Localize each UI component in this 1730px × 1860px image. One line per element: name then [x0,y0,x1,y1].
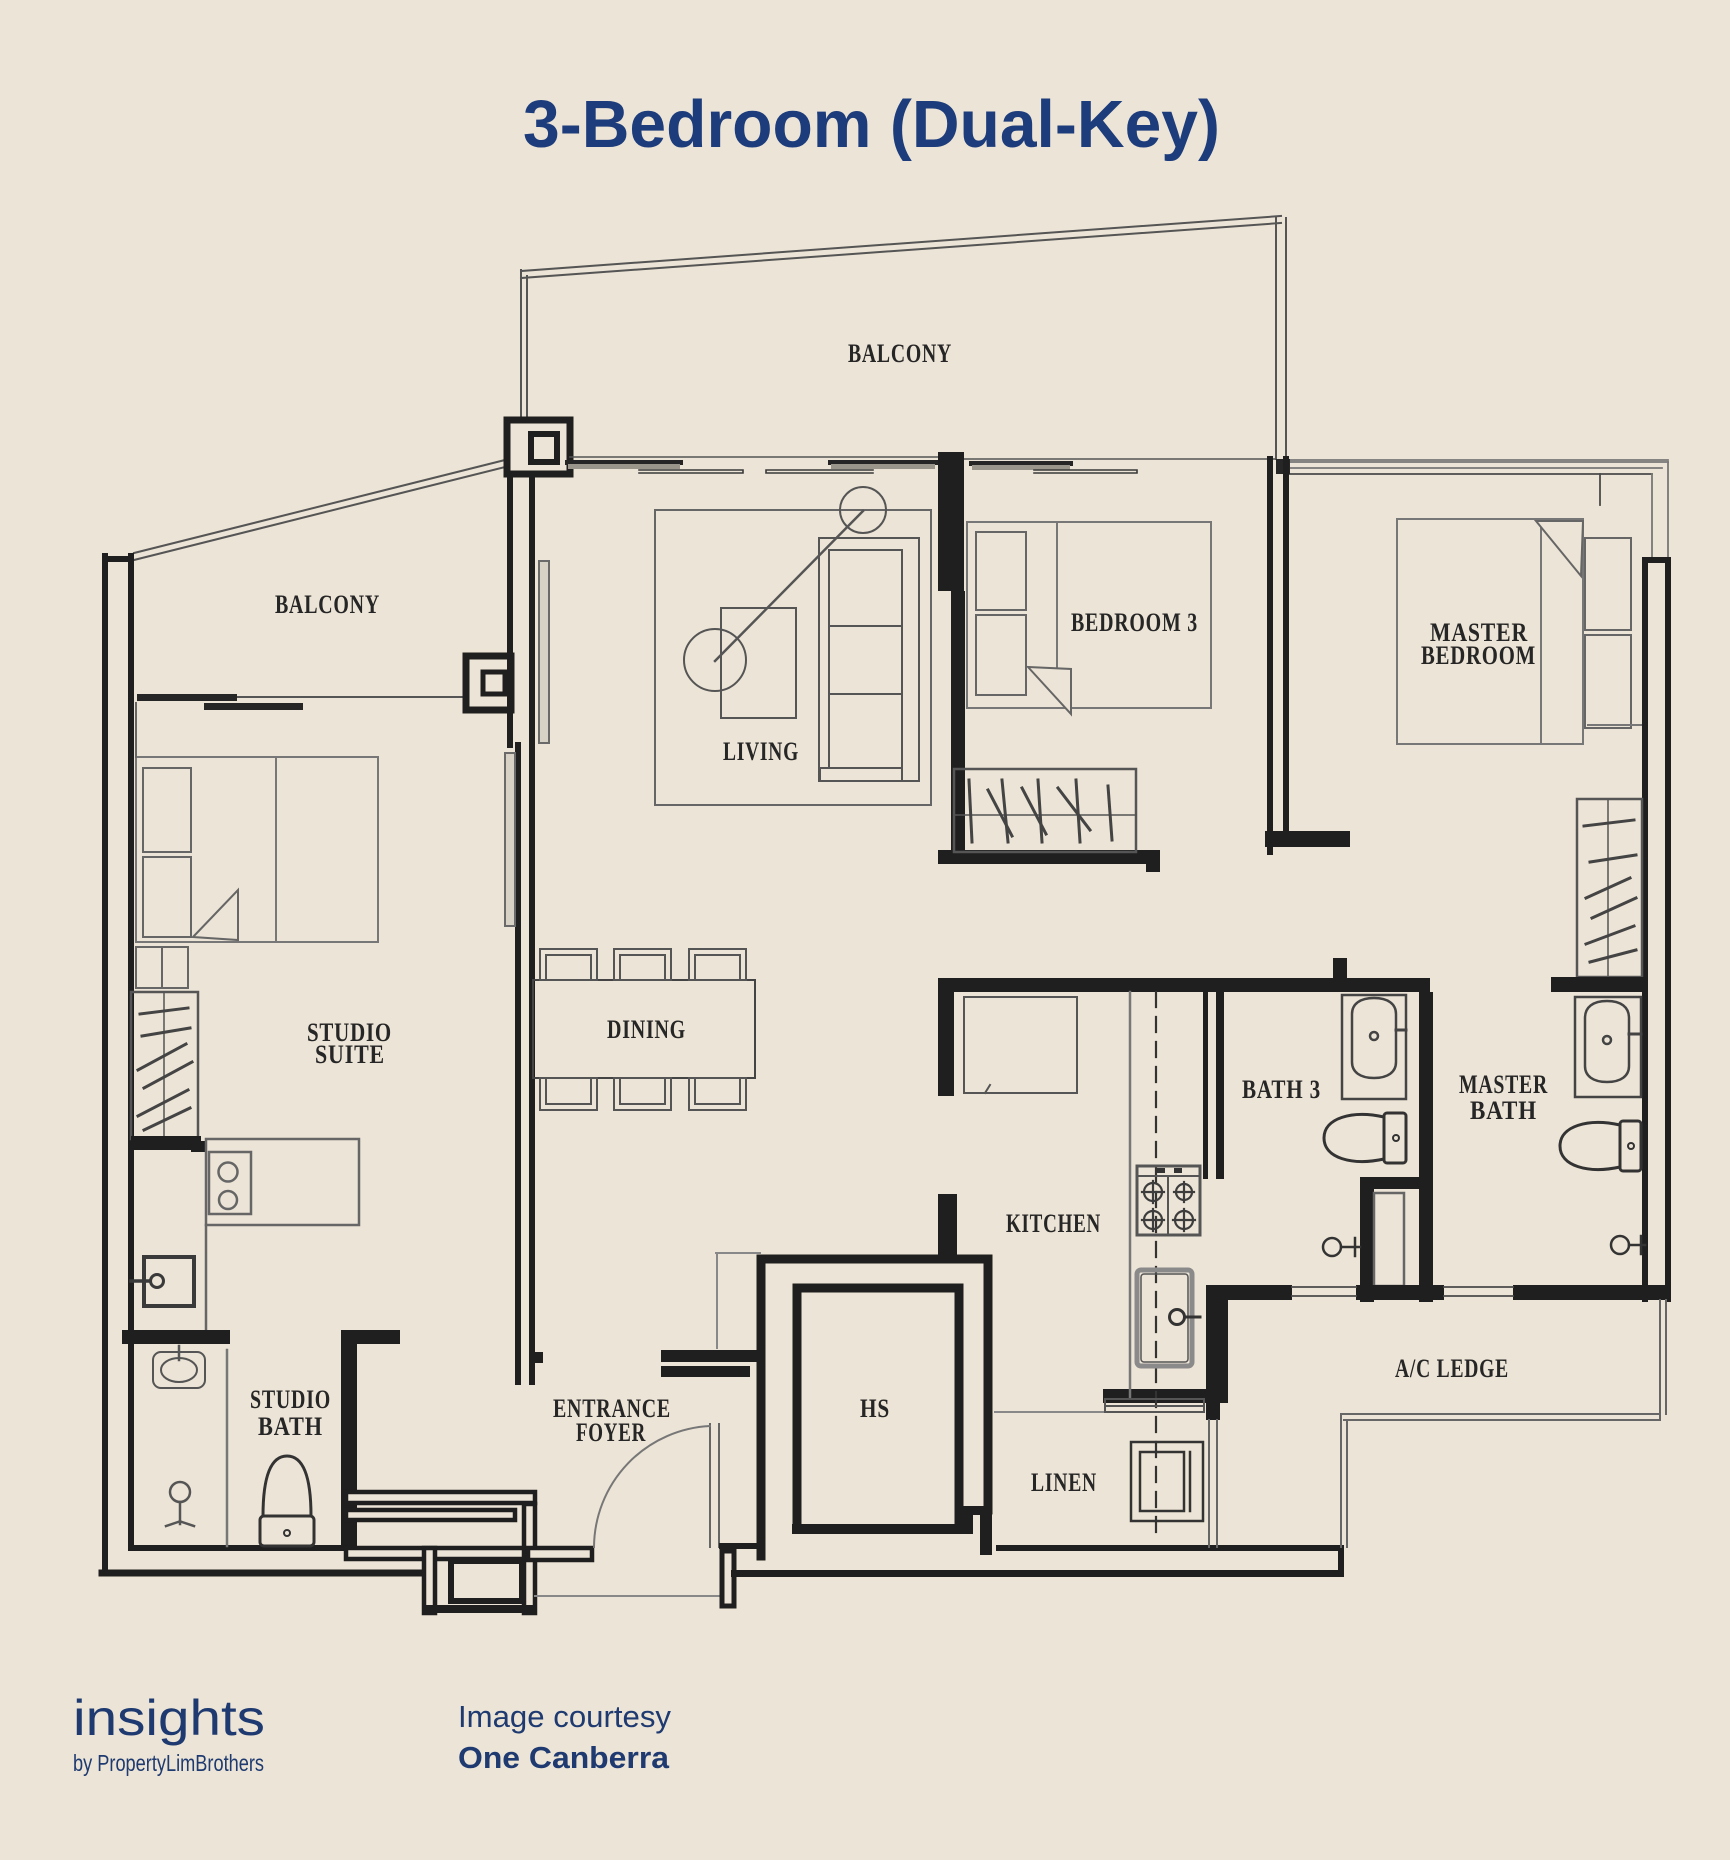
svg-text:LIVING: LIVING [723,737,799,766]
svg-text:BALCONY: BALCONY [848,339,952,368]
svg-text:SUITE: SUITE [315,1040,385,1069]
svg-text:insights: insights [73,1690,265,1746]
svg-text:STUDIO: STUDIO [250,1385,331,1414]
svg-text:A/C LEDGE: A/C LEDGE [1395,1354,1509,1383]
svg-text:One Canberra: One Canberra [458,1740,670,1775]
svg-text:LINEN: LINEN [1031,1468,1097,1497]
svg-text:BALCONY: BALCONY [275,590,380,619]
svg-text:DINING: DINING [607,1015,686,1044]
svg-text:HS: HS [860,1394,890,1423]
svg-text:KITCHEN: KITCHEN [1006,1209,1101,1238]
svg-text:Image courtesy: Image courtesy [458,1699,671,1734]
svg-text:BEDROOM 3: BEDROOM 3 [1071,608,1198,637]
svg-text:MASTER: MASTER [1459,1070,1548,1099]
svg-text:BATH: BATH [258,1412,323,1441]
svg-text:BATH: BATH [1470,1096,1537,1125]
svg-text:BEDROOM: BEDROOM [1421,641,1536,670]
svg-text:BATH 3: BATH 3 [1242,1075,1321,1104]
svg-text:3-Bedroom (Dual-Key): 3-Bedroom (Dual-Key) [523,87,1220,162]
svg-text:by PropertyLimBrothers: by PropertyLimBrothers [73,1750,264,1776]
svg-text:FOYER: FOYER [576,1418,646,1447]
